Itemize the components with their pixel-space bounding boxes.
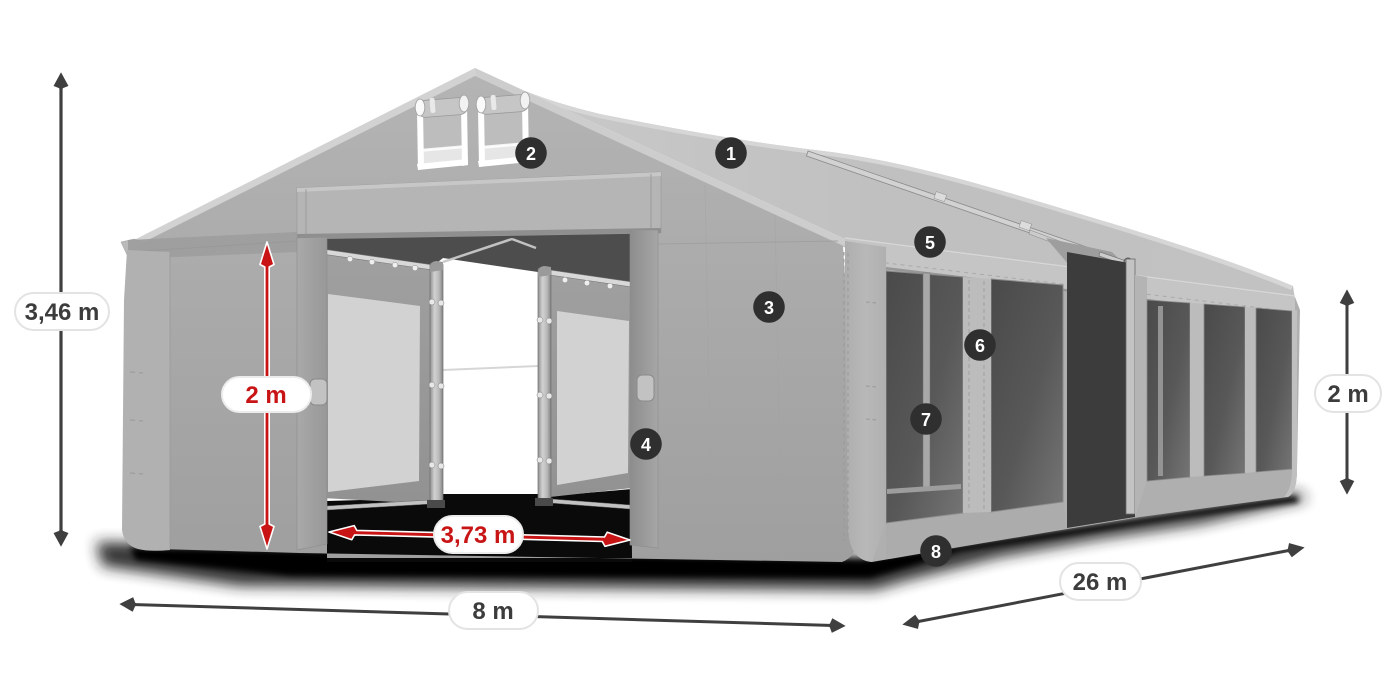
svg-text:2 m: 2 m — [245, 382, 286, 409]
svg-text:2 m: 2 m — [1327, 381, 1368, 408]
svg-text:1: 1 — [726, 144, 736, 164]
svg-text:7: 7 — [921, 410, 931, 430]
svg-text:4: 4 — [641, 435, 651, 455]
svg-text:3: 3 — [764, 298, 774, 318]
svg-text:5: 5 — [925, 233, 935, 253]
svg-text:3,46 m: 3,46 m — [25, 299, 100, 326]
svg-text:6: 6 — [975, 336, 985, 356]
svg-text:2: 2 — [526, 144, 536, 164]
svg-text:8: 8 — [931, 542, 941, 562]
svg-text:26 m: 26 m — [1073, 569, 1128, 596]
svg-text:8 m: 8 m — [472, 598, 513, 625]
svg-text:3,73 m: 3,73 m — [441, 522, 516, 549]
